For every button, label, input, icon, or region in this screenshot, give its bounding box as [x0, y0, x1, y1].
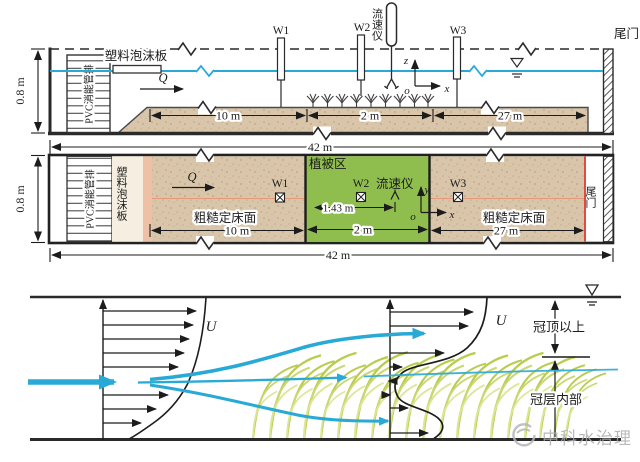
plan-tailgate-hatch [604, 156, 614, 241]
side-w3-probe [454, 37, 461, 79]
side-tailgate [604, 49, 614, 134]
plan-w1-marker [276, 193, 285, 202]
canopy-u-label: U [496, 313, 508, 329]
upstream-u-label: U [206, 319, 218, 335]
plan-total-dim: 42 m [50, 248, 613, 262]
profile-water-surface-symbol [586, 285, 598, 305]
side-water-surface-symbol [511, 59, 523, 78]
plan-w2-marker [357, 193, 366, 202]
side-axis-o: o [404, 85, 410, 97]
plan-w3-marker [454, 193, 463, 202]
side-w1-probe [278, 38, 285, 80]
plan-w2-label: W2 [353, 178, 370, 190]
side-height-dim-label: 0.8 m [13, 77, 27, 105]
side-axis-z: z [403, 55, 409, 67]
flume-experiment-diagram: 尾门 PVC消能管排 塑料泡沫板 Q W1 W2 W3 流速仪 z o x [0, 0, 640, 462]
plan-dim-143: 1.43 m [323, 203, 354, 215]
side-total-dim: 42 m [50, 140, 613, 154]
side-dim-42m: 42 m [308, 140, 333, 154]
side-view-panel: 尾门 PVC消能管排 塑料泡沫板 Q W1 W2 W3 流速仪 z o x [13, 3, 639, 154]
side-w2-probe [358, 35, 365, 80]
side-tailgate-label: 尾门 [614, 26, 639, 41]
plan-dim-2m: 2 m [354, 223, 373, 237]
plan-height-dim-label: 0.8 m [13, 185, 27, 213]
side-pvc-label: PVC消能管排 [83, 64, 96, 123]
plan-height-dim: 0.8 m [13, 156, 45, 243]
upstream-velocity-profile [103, 298, 206, 441]
plan-dim-10m: 10 m [225, 224, 250, 238]
side-w1-label: W1 [273, 25, 290, 37]
figure-canvas: 尾门 PVC消能管排 塑料泡沫板 Q W1 W2 W3 流速仪 z o x [0, 0, 640, 462]
inside-canopy-label: 冠层内部 [530, 392, 582, 407]
plan-discharge-label: Q [187, 170, 196, 184]
side-dim-2m: 2 m [361, 109, 380, 123]
plan-axis-o: o [410, 211, 416, 223]
side-dim-27m: 27 m [498, 109, 523, 123]
plan-view-panel: PVC消能管排 塑料泡沫板 植被区 Q W1 W2 流速仪 W3 1.43 m … [13, 148, 613, 262]
side-discharge-label: Q [158, 71, 167, 85]
plan-adv-label: 流速仪 [376, 177, 414, 191]
watermark-text: 中科水治理 [542, 429, 632, 448]
watermark-logo-icon [514, 424, 535, 445]
side-vegetation-tufts [307, 94, 434, 107]
side-foam-board [113, 66, 161, 74]
plan-dim-27m: 27 m [494, 224, 519, 238]
plan-tailgate-label: 尾门 [584, 186, 597, 209]
plan-axis-y: y [424, 184, 430, 196]
plan-foam-pink-band [143, 156, 152, 241]
watermark: 中科水治理 [514, 424, 632, 448]
plan-dim-42m: 42 m [326, 248, 351, 262]
plan-w1-label: W1 [272, 178, 289, 190]
plan-w3-label: W3 [450, 178, 467, 190]
profile-panel: 冠顶以上 冠层内部 U U [28, 285, 621, 440]
side-adv-body [387, 3, 397, 46]
above-canopy-label: 冠顶以上 [533, 320, 585, 335]
side-foam-label: 塑料泡沫板 [105, 48, 168, 63]
plan-pvc-label: PVC消能管排 [84, 169, 97, 228]
side-axes: z o x [403, 55, 450, 97]
side-w3-label: W3 [450, 25, 467, 37]
plan-foam-label: 塑料泡沫板 [115, 165, 128, 222]
side-bed-dims: 10 m 2 m 27 m [150, 109, 585, 123]
side-height-dim: 0.8 m [13, 49, 45, 133]
side-adv-stem [385, 46, 399, 89]
streamline-upper [150, 334, 424, 380]
streamline-lower [150, 385, 388, 421]
side-w2-label: W2 [354, 22, 371, 34]
side-adv-label: 流速仪 [371, 7, 384, 41]
plan-axis-x: x [449, 209, 455, 221]
plan-veg-zone-label: 植被区 [309, 156, 347, 171]
side-dim-10m: 10 m [216, 109, 241, 123]
side-axis-x: x [444, 83, 450, 95]
